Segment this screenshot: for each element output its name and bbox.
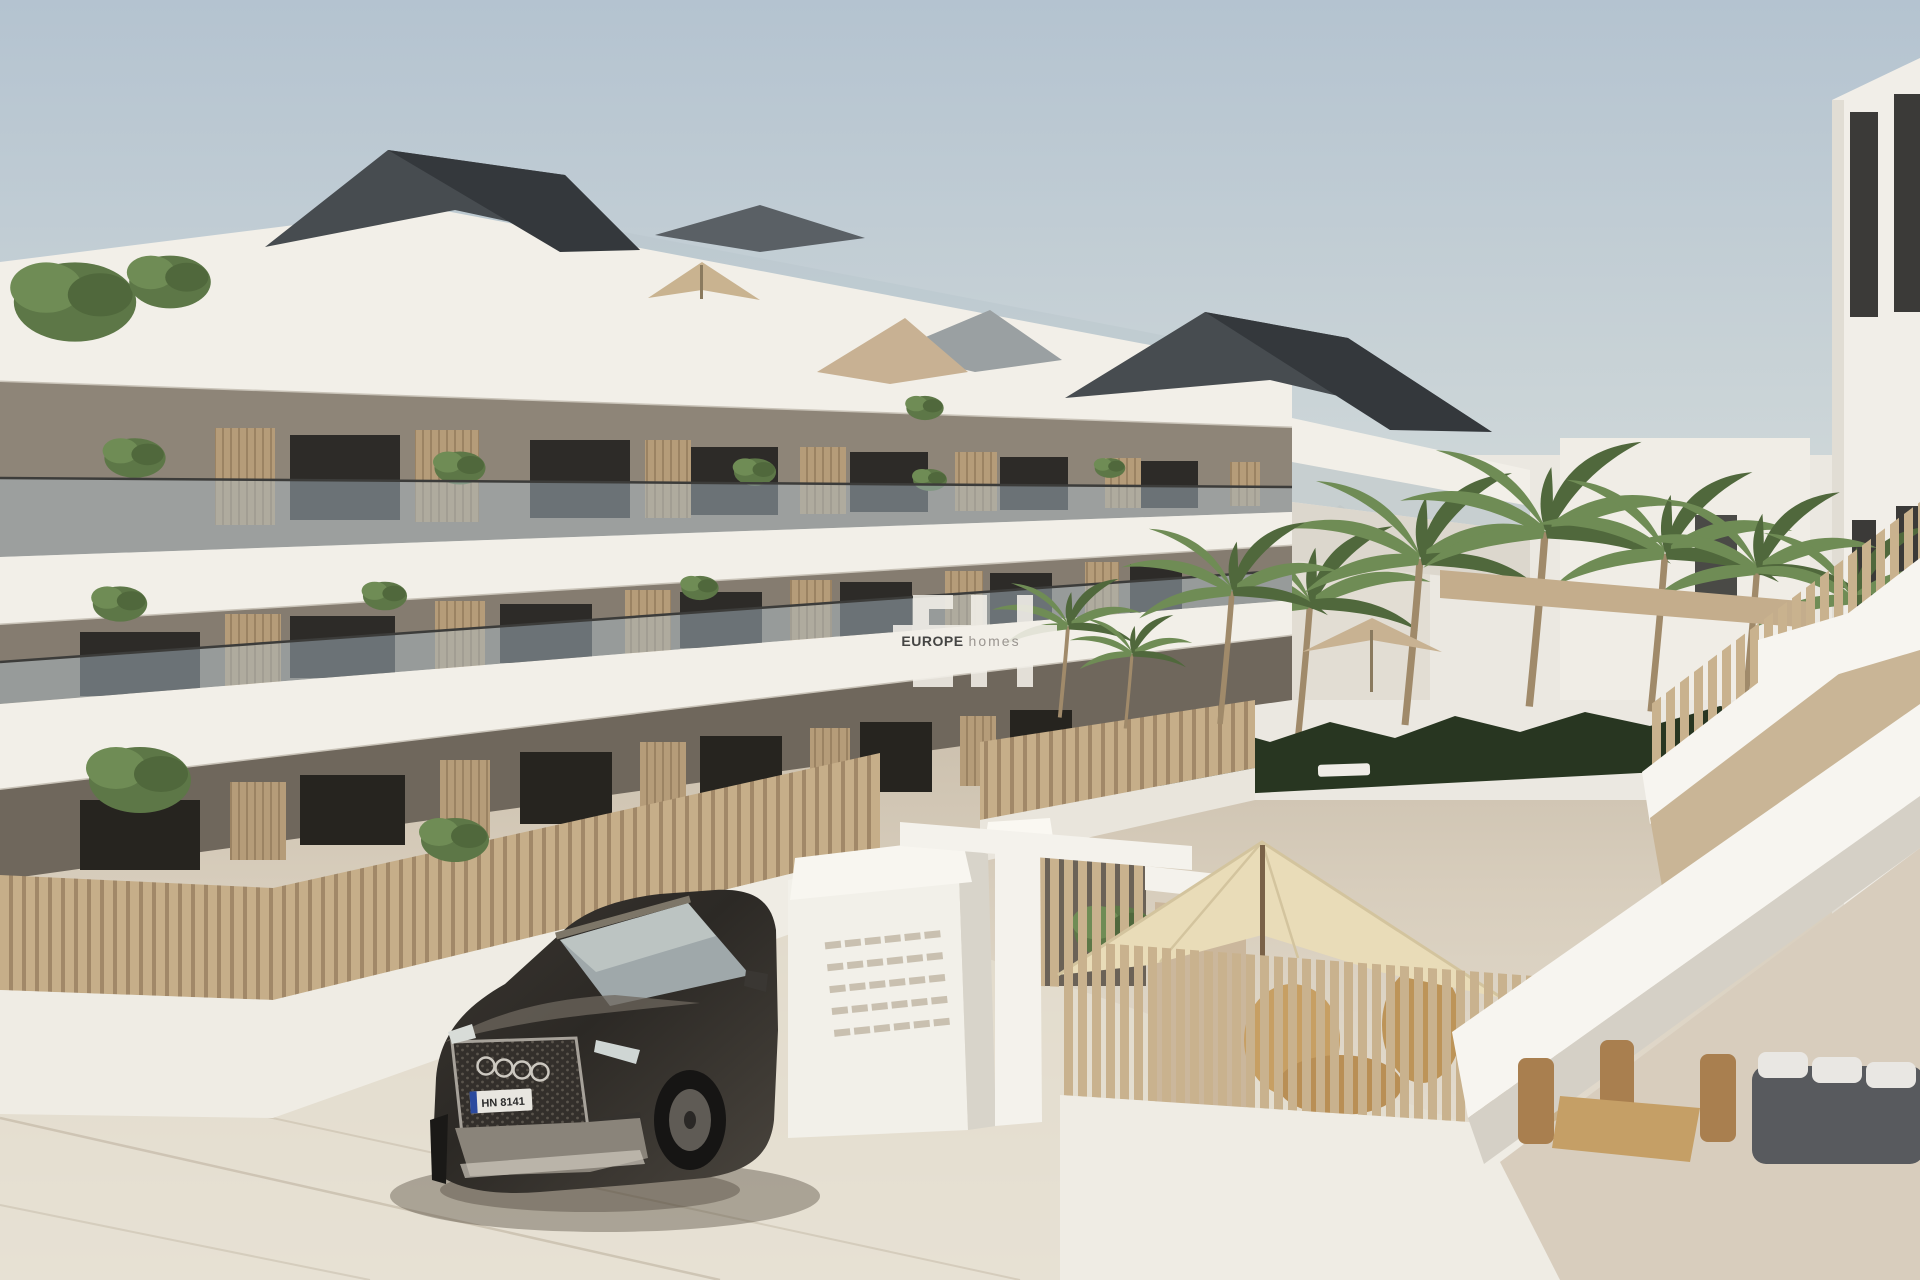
license-plate: HN 8141 bbox=[470, 1088, 533, 1113]
car-wheel-front bbox=[654, 1070, 726, 1170]
patio-sofa bbox=[1752, 1052, 1920, 1164]
render-canvas: HN 8141 bbox=[0, 0, 1920, 1280]
gate-post bbox=[995, 836, 1042, 1126]
fence-left-slats bbox=[0, 875, 273, 1000]
architectural-render-scene: HN 8141 EUROPE homes bbox=[0, 0, 1920, 1280]
car-grille bbox=[452, 1038, 588, 1134]
fence-left-base bbox=[0, 990, 273, 1118]
license-plate-text: HN 8141 bbox=[481, 1096, 525, 1110]
